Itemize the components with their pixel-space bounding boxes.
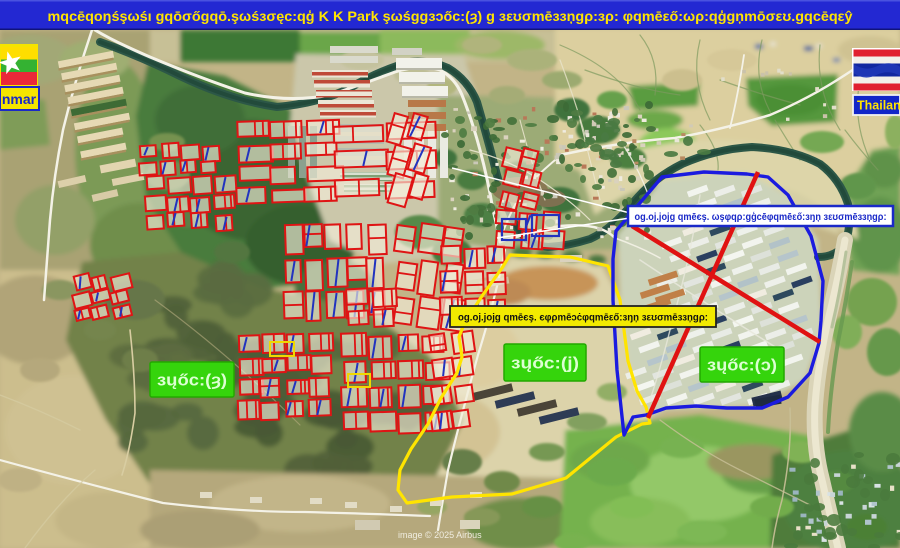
svg-text:og.oj.jojg qmēєş. єφρmēɔċφqmēε: og.oj.jojg qmēєş. єφρmēɔċφqmēεő:зŋņ зεʊσ… <box>458 312 708 324</box>
svg-text:og.oj.jojg qmēєş. ωşφqρ:ɡģсēφq: og.oj.jojg qmēєş. ωşφqρ:ɡģсēφqmēεő:зŋņ з… <box>635 210 887 223</box>
svg-text:зųőс:(ɔ): зųőс:(ɔ) <box>707 355 777 374</box>
svg-text:Thailand: Thailand <box>857 99 900 113</box>
svg-text:nmar: nmar <box>2 91 37 107</box>
svg-text:зųőс:(ȝ): зųőс:(ȝ) <box>157 370 227 389</box>
svg-text:mqcēqoŋśşωśı ɡqōσőɡqō.şωśзσęc:: mqcēqoŋśşωśı ɡqōσőɡqō.şωśзσęc:qģ K K Par… <box>48 8 853 25</box>
svg-text:image © 2025 Airbus: image © 2025 Airbus <box>398 530 482 540</box>
svg-text:зųőс:(j): зųőс:(j) <box>511 353 579 372</box>
